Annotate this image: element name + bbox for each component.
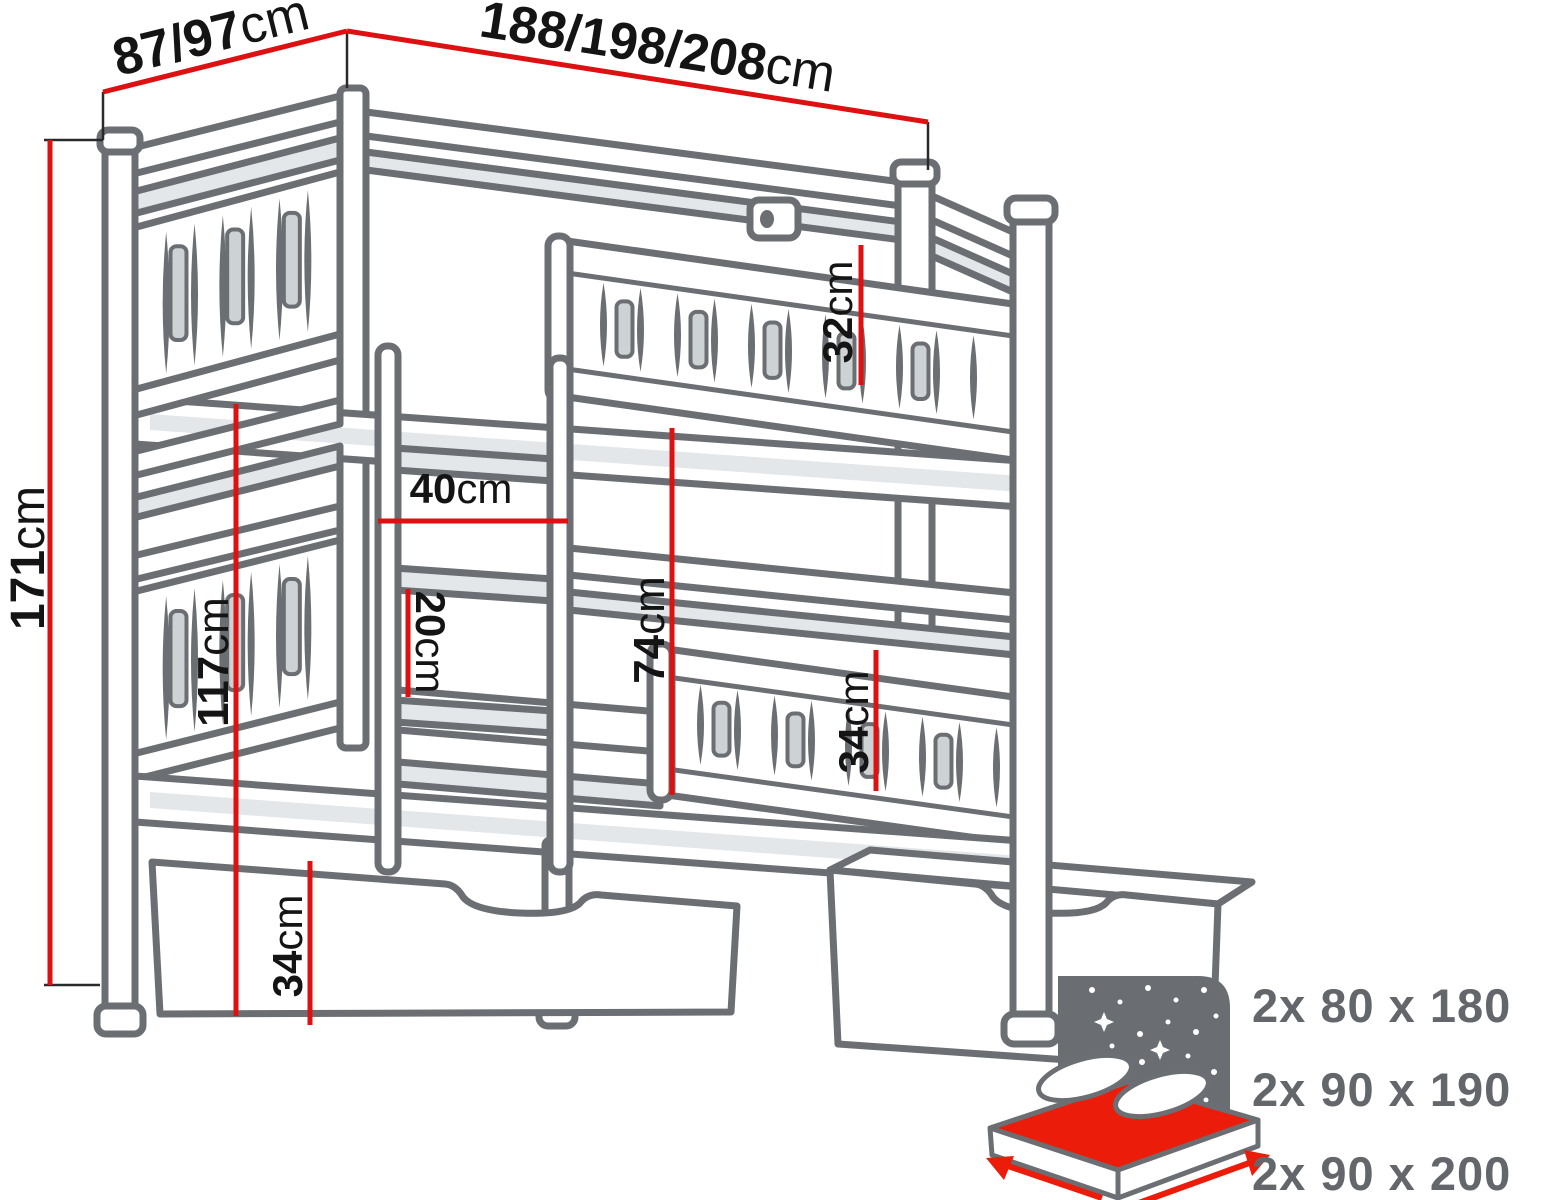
label-bunk-clearance: 74cm <box>625 576 674 684</box>
mattress-size-list: 2x 80 x 180 2x 90 x 190 2x 90 x 200 <box>1252 979 1511 1200</box>
bunk-bed-diagram: 171cm 87/97cm 188/198/208cm 32cm 40cm 20… <box>0 0 1554 1200</box>
front-left-post <box>105 138 135 1014</box>
front-left-post-foot <box>97 1006 143 1034</box>
front-right-post-cap <box>1007 198 1055 222</box>
label-lower-post: 117cm <box>189 597 238 727</box>
front-left-post-cap <box>100 130 140 152</box>
drawer-left[interactable] <box>152 862 737 1014</box>
rear-right-post-cap <box>893 162 937 184</box>
label-rung-gap: 20cm <box>407 591 454 694</box>
ladder-rail-left <box>378 346 398 872</box>
label-upper-guard: 32cm <box>814 261 861 364</box>
mattress-size-3: 2x 90 x 200 <box>1252 1147 1511 1200</box>
center-hook-hole <box>760 210 774 228</box>
mattress-info: 2x 80 x 180 2x 90 x 190 2x 90 x 200 <box>986 974 1511 1200</box>
label-drawer-height: 34cm <box>264 895 311 998</box>
label-lower-guard: 34cm <box>830 671 877 774</box>
diagram-stage: 171cm 87/97cm 188/198/208cm 32cm 40cm 20… <box>0 0 1554 1200</box>
label-length: 188/198/208cm <box>476 0 839 104</box>
front-right-post <box>1013 206 1049 1024</box>
label-total-height: 171cm <box>2 486 55 630</box>
label-depth: 87/97cm <box>107 0 315 88</box>
front-right-post-foot <box>1004 1014 1058 1044</box>
mattress-size-2: 2x 90 x 190 <box>1252 1063 1511 1116</box>
ladder-rail-right <box>550 358 570 872</box>
label-ladder-width: 40cm <box>410 465 513 512</box>
mattress-size-1: 2x 80 x 180 <box>1252 979 1511 1032</box>
